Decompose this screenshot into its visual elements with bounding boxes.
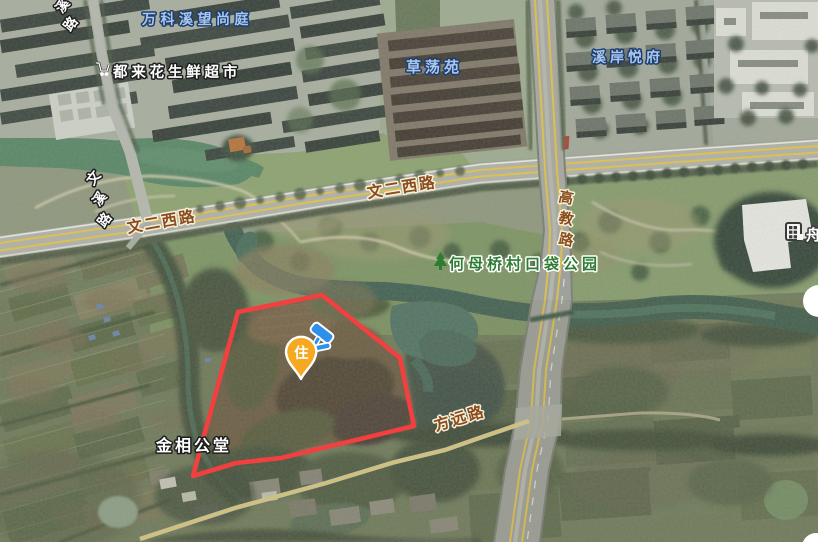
svg-text:万科溪望尚庭: 万科溪望尚庭 [141, 11, 253, 27]
svg-text:舟: 舟 [806, 226, 818, 244]
svg-text:溪岸悦府: 溪岸悦府 [592, 49, 664, 65]
svg-text:都来花生鲜超市: 都来花生鲜超市 [112, 63, 241, 81]
svg-text:草荡苑: 草荡苑 [406, 58, 463, 76]
svg-text:何母桥村口袋公园: 何母桥村口袋公园 [449, 255, 601, 273]
svg-text:住: 住 [294, 344, 309, 362]
svg-text:金相公堂: 金相公堂 [155, 436, 232, 455]
